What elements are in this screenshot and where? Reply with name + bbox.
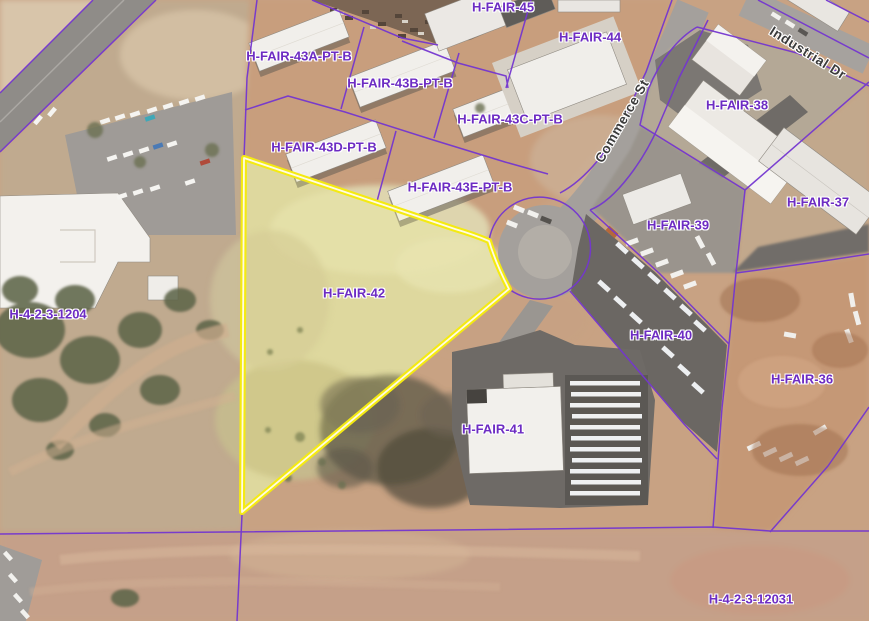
parcel-label-h-fair-41[interactable]: H-FAIR-41 bbox=[462, 422, 524, 437]
parcel-label-h-fair-36[interactable]: H-FAIR-36 bbox=[771, 372, 833, 387]
parcel-label-h-fair-42[interactable]: H-FAIR-42 bbox=[323, 286, 385, 301]
parcel-label-h-fair-37[interactable]: H-FAIR-37 bbox=[787, 195, 849, 210]
parcel-label-h-fair-39[interactable]: H-FAIR-39 bbox=[647, 218, 709, 233]
parcel-label-h-fair-43d[interactable]: H-FAIR-43D-PT-B bbox=[271, 140, 376, 155]
aerial-imagery-layer[interactable] bbox=[0, 0, 869, 621]
parcel-label-h-fair-44[interactable]: H-FAIR-44 bbox=[559, 30, 621, 45]
parcel-label-h-fair-45[interactable]: H-FAIR-45 bbox=[472, 0, 534, 15]
gis-map-viewport[interactable]: H-FAIR-45 H-FAIR-44 H-FAIR-43A-PT-B H-FA… bbox=[0, 0, 869, 621]
parcel-label-h-fair-43c[interactable]: H-FAIR-43C-PT-B bbox=[457, 112, 562, 127]
parcel-label-h-fair-38[interactable]: H-FAIR-38 bbox=[706, 98, 768, 113]
parcel-label-h-fair-43a[interactable]: H-FAIR-43A-PT-B bbox=[246, 49, 351, 64]
parcel-label-h-fair-40[interactable]: H-FAIR-40 bbox=[630, 328, 692, 343]
parcel-label-h-4-2-3-1204[interactable]: H-4-2-3-1204 bbox=[9, 307, 86, 322]
parcel-label-h-fair-43b[interactable]: H-FAIR-43B-PT-B bbox=[347, 76, 452, 91]
parcel-label-h-fair-43e[interactable]: H-FAIR-43E-PT-B bbox=[408, 180, 513, 195]
parcel-label-h-4-2-3-12031[interactable]: H-4-2-3-12031 bbox=[709, 592, 794, 607]
